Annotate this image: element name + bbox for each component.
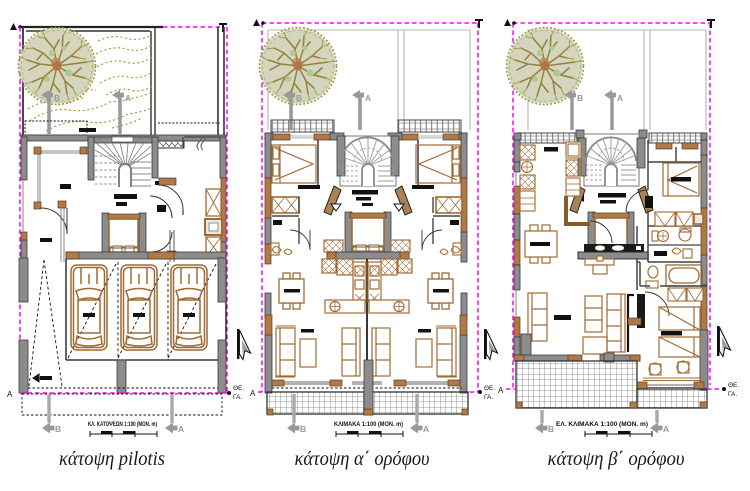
svg-text:ΘΕ.: ΘΕ. — [484, 385, 495, 392]
svg-text:B: B — [548, 424, 554, 434]
svg-text:B: B — [300, 424, 306, 434]
svg-text:A: A — [423, 424, 429, 434]
svg-text:ΘΕ.: ΘΕ. — [728, 382, 739, 389]
svg-text:ΕΛ. ΚΛΙΜΑΚΑ 1:100 (ΜΟΝ. m): ΕΛ. ΚΛΙΜΑΚΑ 1:100 (ΜΟΝ. m) — [556, 422, 648, 428]
svg-text:ΓΑ.: ΓΑ. — [233, 394, 242, 401]
svg-text:A: A — [125, 93, 131, 103]
svg-text:A: A — [663, 424, 669, 434]
svg-text:ΘΕ.: ΘΕ. — [233, 385, 244, 392]
svg-text:B: B — [296, 93, 302, 103]
svg-text:ΚΛ. ΚΑΤΟΨΕΩΝ 1:100 (ΜΟΝ. m): ΚΛ. ΚΑΤΟΨΕΩΝ 1:100 (ΜΟΝ. m) — [88, 422, 157, 428]
svg-text:A: A — [617, 93, 623, 103]
svg-text:A: A — [250, 389, 256, 398]
svg-text:A: A — [178, 424, 184, 434]
svg-text:A: A — [7, 390, 13, 399]
svg-text:ΓΑ.: ΓΑ. — [484, 394, 493, 401]
svg-text:B: B — [54, 93, 60, 103]
svg-text:κάτοψη β΄ ορόφου: κάτοψη β΄ ορόφου — [548, 448, 685, 470]
svg-text:ΚΛΙΜΑΚΑ 1:100 (ΜΟΝ. m): ΚΛΙΜΑΚΑ 1:100 (ΜΟΝ. m) — [334, 422, 403, 428]
svg-text:ΓΑ.: ΓΑ. — [728, 391, 737, 398]
svg-text:B: B — [55, 424, 61, 434]
svg-text:B: B — [577, 93, 583, 103]
svg-text:A: A — [365, 93, 371, 103]
svg-text:κάτοψη pilotis: κάτοψη pilotis — [59, 448, 165, 470]
svg-text:κάτοψη α΄ ορόφου: κάτοψη α΄ ορόφου — [295, 448, 430, 470]
svg-text:A: A — [498, 386, 504, 395]
